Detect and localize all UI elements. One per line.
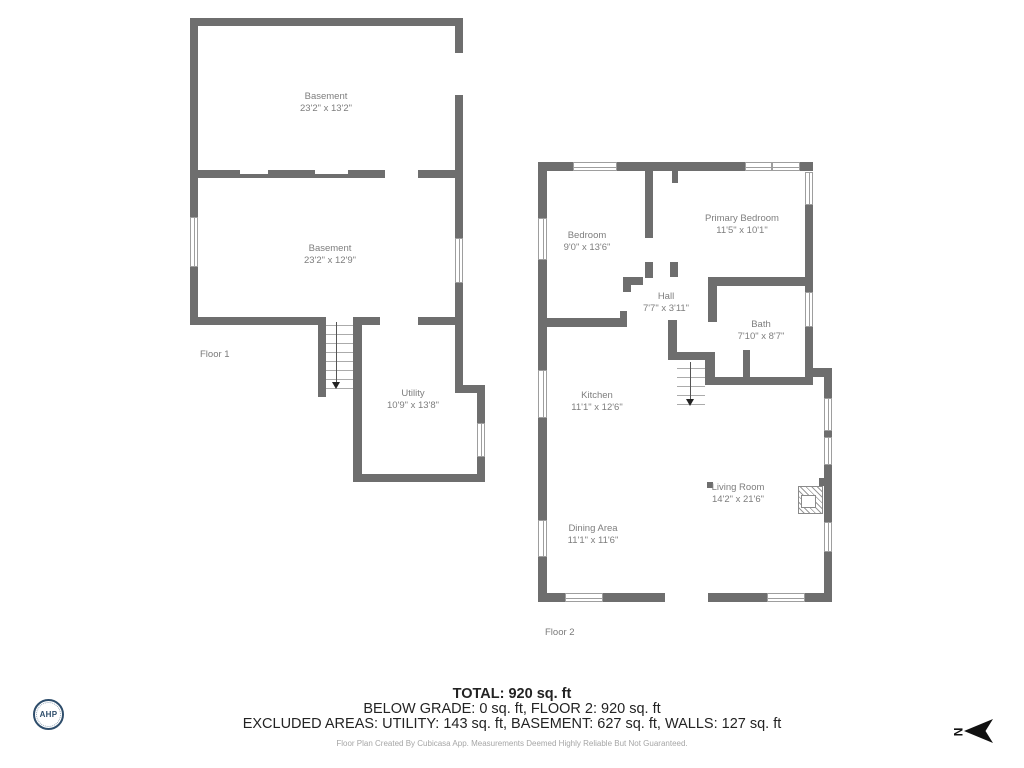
room-label-basement-upper: Basement 23'2" x 13'2"	[246, 91, 406, 114]
wall-opening	[315, 174, 348, 178]
wall-segment	[717, 277, 813, 286]
room-name: Utility	[333, 388, 493, 400]
window	[772, 162, 800, 171]
wall-segment	[198, 170, 240, 178]
wall-nub	[819, 478, 824, 486]
staircase-floor1	[326, 317, 353, 389]
window	[745, 162, 772, 171]
wall-segment	[538, 418, 547, 520]
wall-segment	[198, 317, 318, 325]
room-label-bath: Bath 7'10" x 8'7"	[681, 319, 841, 342]
window	[824, 522, 832, 552]
wall-segment	[617, 162, 745, 171]
floor2-label: Floor 2	[545, 627, 575, 638]
area-summary: TOTAL: 920 sq. ft BELOW GRADE: 0 sq. ft,…	[0, 686, 1024, 732]
wall-segment	[708, 593, 767, 602]
north-arrow-shape	[964, 719, 993, 743]
room-dimensions: 11'1" x 12'6"	[517, 402, 677, 414]
wall-segment	[668, 320, 677, 360]
floorplan-page: Basement 23'2" x 13'2" Basement 23'2" x …	[0, 0, 1024, 768]
wall-segment	[645, 262, 653, 278]
wall-opening	[240, 174, 268, 178]
room-dimensions: 11'5" x 10'1"	[662, 225, 822, 237]
window	[573, 162, 617, 171]
wall-segment	[348, 170, 385, 178]
room-name: Bath	[681, 319, 841, 331]
wall-segment	[824, 465, 832, 522]
wall-segment	[743, 350, 750, 377]
room-label-kitchen: Kitchen 11'1" x 12'6"	[517, 390, 677, 413]
wall-segment	[538, 260, 547, 370]
wall-segment	[677, 352, 715, 360]
ahp-seal-logo: AHP	[33, 699, 64, 730]
grade-area-text: BELOW GRADE: 0 sq. ft, FLOOR 2: 920 sq. …	[0, 702, 1024, 717]
north-arrow-icon: N	[940, 710, 1002, 750]
wall-segment	[538, 593, 565, 602]
north-label: N	[951, 728, 965, 737]
room-label-hall: Hall 7'7" x 3'11"	[586, 291, 746, 314]
room-label-basement-lower: Basement 23'2" x 12'9"	[250, 243, 410, 266]
room-label-living-room: Living Room 14'2" x 21'6"	[658, 482, 818, 505]
wall-segment	[824, 552, 832, 602]
wall-segment	[190, 267, 198, 325]
window	[767, 593, 805, 602]
window	[190, 217, 198, 267]
wall-segment	[362, 317, 380, 325]
room-name: Basement	[246, 91, 406, 103]
room-name: Bedroom	[507, 230, 667, 242]
wall-segment	[800, 162, 813, 171]
room-dimensions: 10'9" x 13'8"	[333, 400, 493, 412]
wall-segment	[455, 95, 463, 238]
room-name: Basement	[250, 243, 410, 255]
room-dimensions: 23'2" x 13'2"	[246, 103, 406, 115]
window	[477, 423, 485, 457]
wall-segment	[670, 262, 678, 277]
room-name: Kitchen	[517, 390, 677, 402]
wall-segment	[672, 171, 678, 183]
room-label-utility: Utility 10'9" x 13'8"	[333, 388, 493, 411]
room-dimensions: 11'1" x 11'6"	[513, 535, 673, 547]
wall-segment	[547, 318, 627, 327]
room-name: Living Room	[658, 482, 818, 494]
wall-segment	[645, 171, 653, 238]
window	[565, 593, 603, 602]
room-name: Primary Bedroom	[662, 213, 822, 225]
logo-text: AHP	[40, 710, 58, 719]
room-dimensions: 14'2" x 21'6"	[658, 494, 818, 506]
stairs-direction-line	[336, 322, 337, 382]
wall-segment	[455, 18, 463, 53]
wall-segment	[418, 317, 455, 325]
room-dimensions: 9'0" x 13'6"	[507, 242, 667, 254]
room-label-dining-area: Dining Area 11'1" x 11'6"	[513, 523, 673, 546]
room-name: Hall	[586, 291, 746, 303]
wall-segment	[353, 474, 485, 482]
window	[824, 398, 832, 431]
stairs-down-arrow-icon	[686, 399, 694, 406]
wall-segment	[538, 171, 547, 218]
wall-segment	[455, 283, 463, 385]
wall-segment	[268, 170, 315, 178]
wall-segment	[805, 368, 832, 377]
room-dimensions: 7'10" x 8'7"	[681, 331, 841, 343]
wall-segment	[715, 377, 813, 385]
wall-segment	[190, 26, 198, 217]
room-dimensions: 23'2" x 12'9"	[250, 255, 410, 267]
wall-segment	[603, 593, 665, 602]
room-label-primary-bedroom: Primary Bedroom 11'5" x 10'1"	[662, 213, 822, 236]
wall-segment	[418, 170, 455, 178]
wall-segment	[190, 18, 463, 26]
window	[824, 437, 832, 465]
room-name: Dining Area	[513, 523, 673, 535]
wall-segment	[824, 377, 832, 398]
window	[455, 238, 463, 283]
wall-segment	[538, 162, 573, 171]
room-dimensions: 7'7" x 3'11"	[586, 303, 746, 315]
room-label-bedroom: Bedroom 9'0" x 13'6"	[507, 230, 667, 253]
floor1-label: Floor 1	[200, 349, 230, 360]
disclaimer-text: Floor Plan Created By Cubicasa App. Meas…	[0, 739, 1024, 748]
wall-segment	[318, 317, 326, 397]
window	[805, 172, 813, 205]
excluded-area-text: EXCLUDED AREAS: UTILITY: 143 sq. ft, BAS…	[0, 717, 1024, 732]
wall-segment	[623, 277, 643, 285]
total-area-text: TOTAL: 920 sq. ft	[0, 686, 1024, 702]
stairs-direction-line	[690, 362, 691, 400]
